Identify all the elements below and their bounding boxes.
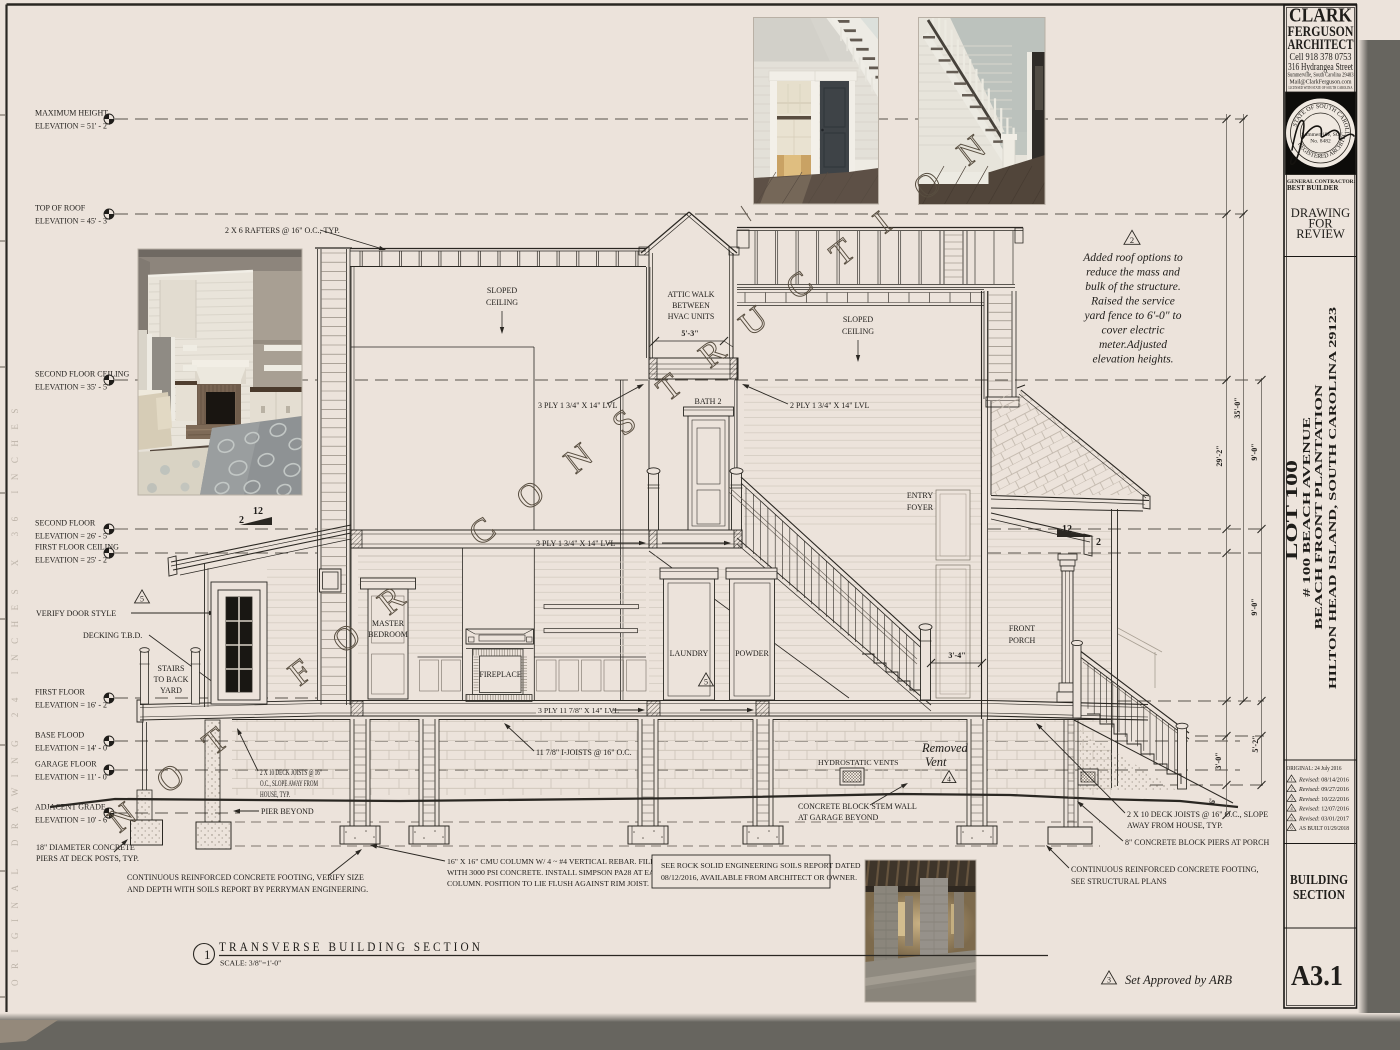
svg-text:elevation heights.: elevation heights. [1092, 354, 1173, 366]
svg-text:No. 8482: No. 8482 [1310, 139, 1331, 145]
svg-text:2 PLY 1 3/4" X 14" LVL: 2 PLY 1 3/4" X 14" LVL [790, 401, 869, 410]
svg-text:BEACH FRONT PLANTATION: BEACH FRONT PLANTATION [1314, 384, 1325, 630]
svg-text:MASTER: MASTER [372, 619, 405, 628]
svg-text:08/12/2016, AVAILABLE FROM ARC: 08/12/2016, AVAILABLE FROM ARCHITECT OR … [661, 873, 857, 882]
svg-text:HILTON HEAD ISLAND, SOUTH CARO: HILTON HEAD ISLAND, SOUTH CAROLINA 29123 [1328, 307, 1339, 689]
svg-text:9'-0": 9'-0" [1250, 443, 1259, 460]
svg-text:1: 1 [204, 947, 211, 962]
svg-text:ELEVATION = 16' - 2": ELEVATION = 16' - 2" [35, 701, 110, 710]
svg-text:Summerville, South Carolina 29: Summerville, South Carolina 29483 [1288, 72, 1354, 79]
svg-text:35'-0": 35'-0" [1233, 397, 1242, 418]
svg-text:AND DEPTH WITH SOILS REPORT BY: AND DEPTH WITH SOILS REPORT BY PERRYMAN … [127, 885, 368, 894]
svg-text:CONCRETE BLOCK STEM WALL: CONCRETE BLOCK STEM WALL [798, 802, 917, 811]
svg-text:3: 3 [1107, 976, 1111, 985]
svg-text:Revised: 08/14/2016: Revised: 08/14/2016 [1298, 777, 1349, 784]
svg-text:yard fence to 6'-0" to: yard fence to 6'-0" to [1084, 310, 1182, 322]
svg-text:3 PLY 11 7/8" X 14" LVL: 3 PLY 11 7/8" X 14" LVL [538, 706, 619, 715]
svg-text:reduce the mass and: reduce the mass and [1086, 267, 1180, 279]
svg-text:LAUNDRY: LAUNDRY [670, 649, 709, 658]
svg-text:Revised: 03/01/2017: Revised: 03/01/2017 [1298, 815, 1350, 822]
svg-text:REVIEW: REVIEW [1296, 227, 1345, 241]
svg-text:PIERS AT DECK POSTS, TYP.: PIERS AT DECK POSTS, TYP. [36, 854, 139, 863]
svg-text:CEILING: CEILING [486, 298, 518, 307]
svg-text:FIREPLACE: FIREPLACE [479, 670, 521, 679]
svg-text:ELEVATION = 25' - 2": ELEVATION = 25' - 2" [35, 556, 110, 565]
svg-text:A3.1: A3.1 [1291, 961, 1343, 992]
svg-text:2: 2 [1130, 235, 1134, 245]
svg-text:BETWEEN: BETWEEN [672, 301, 710, 310]
svg-text:ELEVATION = 51' - 2": ELEVATION = 51' - 2" [35, 122, 110, 131]
svg-text:MAXIMUM HEIGHT: MAXIMUM HEIGHT [35, 109, 108, 118]
svg-text:8" CONCRETE BLOCK PIERS AT POR: 8" CONCRETE BLOCK PIERS AT PORCH [1125, 838, 1269, 847]
svg-text:FOYER: FOYER [907, 503, 934, 512]
svg-text:AT GARAGE BEYOND: AT GARAGE BEYOND [798, 813, 879, 822]
svg-text:O.C., SLOPE AWAY FROM: O.C., SLOPE AWAY FROM [260, 779, 318, 788]
svg-text:LOT 100: LOT 100 [1282, 460, 1301, 560]
svg-text:3 PLY 1 3/4" X 14" LVL: 3 PLY 1 3/4" X 14" LVL [538, 401, 617, 410]
svg-text:FIRST FLOOR: FIRST FLOOR [35, 688, 86, 697]
svg-text:ELEVATION = 10' - 6": ELEVATION = 10' - 6" [35, 816, 110, 825]
svg-text:LICENSED WITH STATE OF SOUTH C: LICENSED WITH STATE OF SOUTH CAROLINA [1289, 85, 1353, 90]
svg-text:CEILING: CEILING [842, 327, 874, 336]
svg-text:SEE ROCK SOLID ENGINEERING SOI: SEE ROCK SOLID ENGINEERING SOILS REPORT … [661, 861, 861, 870]
svg-text:5'-3": 5'-3" [681, 329, 698, 338]
svg-text:Revised: 09/27/2016: Revised: 09/27/2016 [1298, 786, 1349, 793]
svg-text:WITH 3000 PSI CONCRETE. INSTA: WITH 3000 PSI CONCRETE. INSTALL SIMPSON … [447, 868, 666, 877]
svg-text:ELEVATION = 35' - 5": ELEVATION = 35' - 5" [35, 383, 110, 392]
svg-text:HYDROSTATIC VENTS: HYDROSTATIC VENTS [818, 758, 898, 767]
svg-text:CONTINUOUS REINFORCED CONCRETE: CONTINUOUS REINFORCED CONCRETE FOOTING, [1071, 865, 1259, 874]
svg-text:4: 4 [947, 774, 951, 783]
svg-text:ENTRY: ENTRY [907, 491, 933, 500]
svg-text:SECTION: SECTION [1293, 888, 1345, 903]
svg-text:9'-0": 9'-0" [1250, 598, 1259, 615]
svg-text:ATTIC WALK: ATTIC WALK [668, 290, 715, 299]
svg-text:2 X 10 DECK JOISTS @ 16": 2 X 10 DECK JOISTS @ 16" [260, 768, 322, 777]
svg-text:18" DIAMETER CONCRETE: 18" DIAMETER CONCRETE [36, 843, 135, 852]
svg-text:meter.Adjusted: meter.Adjusted [1099, 339, 1167, 351]
svg-text:COLUMN. POSITION TO LIE FLUSH: COLUMN. POSITION TO LIE FLUSH AGAINST RI… [447, 879, 649, 888]
svg-text:16" X 16" CMU COLUMN W/ 4 ~ #4: 16" X 16" CMU COLUMN W/ 4 ~ #4 VERTICAL … [447, 857, 655, 866]
svg-text:HVAC UNITS: HVAC UNITS [668, 312, 715, 321]
svg-text:SCALE: 3/8"=1'-0": SCALE: 3/8"=1'-0" [220, 959, 281, 968]
svg-text:6': 6' [1208, 798, 1217, 804]
svg-text:bulk of the structure.: bulk of the structure. [1085, 281, 1180, 293]
svg-text:YARD: YARD [160, 686, 182, 695]
svg-text:Removed: Removed [921, 741, 969, 755]
svg-text:PORCH: PORCH [1009, 636, 1036, 645]
svg-text:# 100 BEACH AVENUE: # 100 BEACH AVENUE [1302, 417, 1313, 597]
svg-text:Vent: Vent [925, 755, 947, 769]
svg-text:5: 5 [704, 678, 708, 687]
svg-text:3'-0": 3'-0" [1214, 752, 1223, 769]
svg-text:29'-2": 29'-2" [1215, 445, 1224, 466]
svg-text:Revised: 12/07/2016: Revised: 12/07/2016 [1298, 806, 1349, 813]
svg-text:AS BUILT 01/29/2018: AS BUILT 01/29/2018 [1299, 825, 1349, 832]
svg-text:POWDER: POWDER [735, 649, 769, 658]
svg-text:5: 5 [140, 595, 144, 604]
svg-text:VERIFY DOOR STYLE: VERIFY DOOR STYLE [36, 609, 116, 618]
svg-text:SLOPED: SLOPED [843, 315, 873, 324]
svg-text:ORIGINAL DRAWING 24 INCHES X 3: ORIGINAL DRAWING 24 INCHES X 36 INCHES [10, 398, 20, 986]
svg-text:BUILDING: BUILDING [1290, 873, 1348, 888]
svg-text:Added roof options to: Added roof options to [1082, 252, 1183, 264]
svg-text:SECOND FLOOR: SECOND FLOOR [35, 519, 96, 528]
svg-text:BEDROOM: BEDROOM [368, 630, 407, 639]
svg-text:STAIRS: STAIRS [158, 664, 185, 673]
svg-text:BASE FLOOD: BASE FLOOD [35, 731, 84, 740]
svg-text:5'-2": 5'-2" [1251, 735, 1260, 752]
svg-text:BATH 2: BATH 2 [695, 397, 722, 406]
svg-text:cover electric: cover electric [1102, 325, 1165, 337]
svg-text:SEE STRUCTURAL PLANS: SEE STRUCTURAL PLANS [1071, 877, 1167, 886]
svg-text:ELEVATION = 11' - 0": ELEVATION = 11' - 0" [35, 773, 110, 782]
svg-text:12: 12 [253, 506, 263, 517]
svg-text:2 X 10 DECK JOISTS @ 16" O.C.,: 2 X 10 DECK JOISTS @ 16" O.C., SLOPE [1127, 810, 1268, 819]
svg-text:DECKING T.B.D.: DECKING T.B.D. [83, 631, 142, 640]
svg-text:PIER BEYOND: PIER BEYOND [261, 807, 314, 816]
svg-text:SECOND FLOOR CEILING: SECOND FLOOR CEILING [35, 370, 129, 379]
svg-text:Set Approved by ARB: Set Approved by ARB [1125, 973, 1232, 987]
svg-text:GARAGE FLOOR: GARAGE FLOOR [35, 760, 97, 769]
svg-text:3 PLY 1 3/4" X 14" LVL: 3 PLY 1 3/4" X 14" LVL [536, 539, 615, 548]
svg-text:11 7/8" I-JOISTS @ 16" O.C.: 11 7/8" I-JOISTS @ 16" O.C. [536, 748, 632, 757]
svg-text:ORIGINAL: 24 July 2016: ORIGINAL: 24 July 2016 [1287, 765, 1343, 772]
svg-text:SLOPED: SLOPED [487, 286, 517, 295]
svg-text:Raised the service: Raised the service [1090, 296, 1175, 308]
svg-text:3'-4": 3'-4" [948, 651, 965, 660]
svg-text:Revised: 10/22/2016: Revised: 10/22/2016 [1298, 796, 1349, 803]
svg-text:FRONT: FRONT [1009, 624, 1035, 633]
svg-text:2: 2 [1096, 537, 1101, 548]
svg-text:TOP OF ROOF: TOP OF ROOF [35, 204, 86, 213]
svg-text:ELEVATION = 14' - 0": ELEVATION = 14' - 0" [35, 744, 110, 753]
svg-text:AWAY FROM HOUSE, TYP.: AWAY FROM HOUSE, TYP. [1127, 821, 1223, 830]
svg-text:HOUSE, TYP.: HOUSE, TYP. [260, 790, 290, 799]
svg-text:ELEVATION = 26' - 5": ELEVATION = 26' - 5" [35, 532, 110, 541]
svg-text:CONTINUOUS REINFORCED CONCRETE: CONTINUOUS REINFORCED CONCRETE FOOTING, … [127, 873, 364, 882]
svg-text:2: 2 [239, 515, 244, 526]
svg-text:BEST BUILDER: BEST BUILDER [1287, 184, 1339, 192]
svg-text:TRANSVERSE BUILDING SECTION: TRANSVERSE BUILDING SECTION [219, 940, 483, 954]
svg-text:TO BACK: TO BACK [154, 675, 189, 684]
svg-text:ELEVATION = 45' - 3": ELEVATION = 45' - 3" [35, 217, 110, 226]
